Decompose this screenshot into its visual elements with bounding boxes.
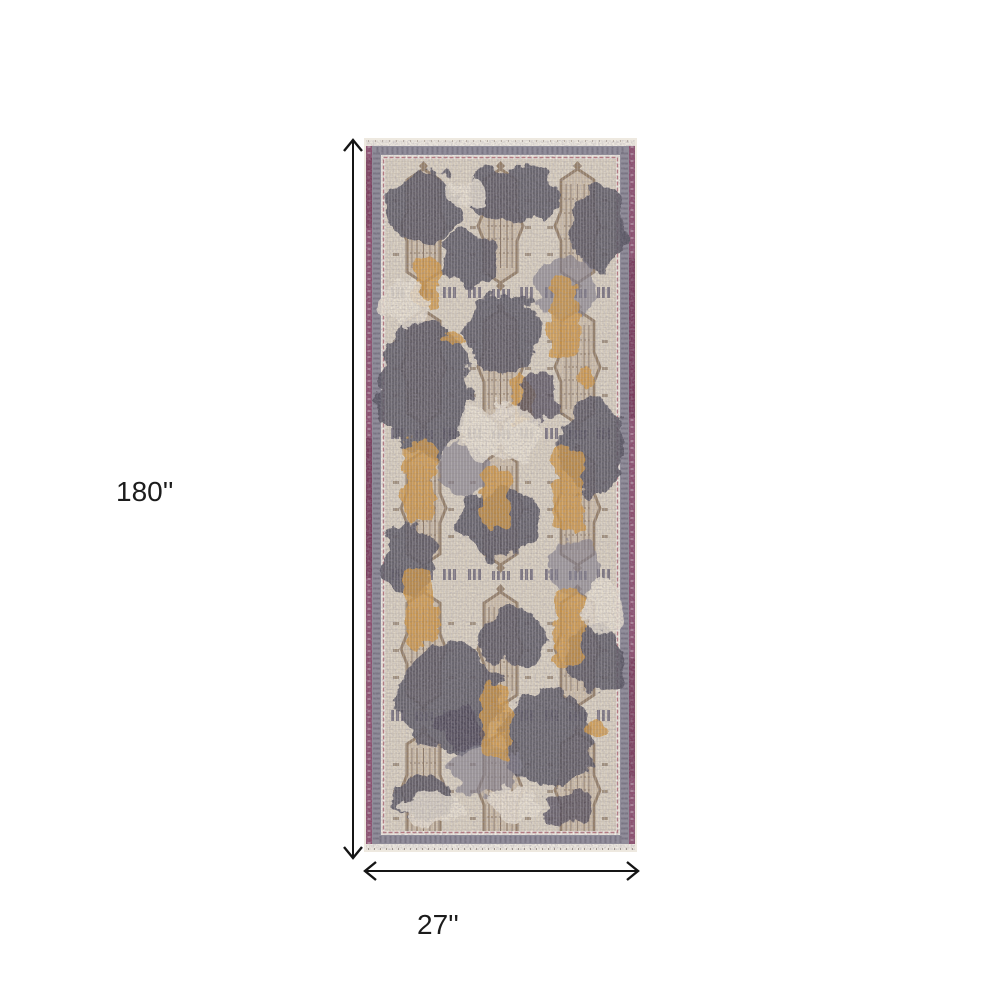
width-arrow-icon	[362, 858, 641, 884]
rug-product-image	[364, 138, 637, 852]
height-dimension-label: 180''	[116, 477, 173, 508]
product-dimension-figure: 180'' 27''	[0, 0, 1000, 1000]
width-dimension-label: 27''	[417, 910, 459, 941]
rug-illustration	[364, 138, 637, 852]
height-arrow-icon	[340, 136, 366, 862]
